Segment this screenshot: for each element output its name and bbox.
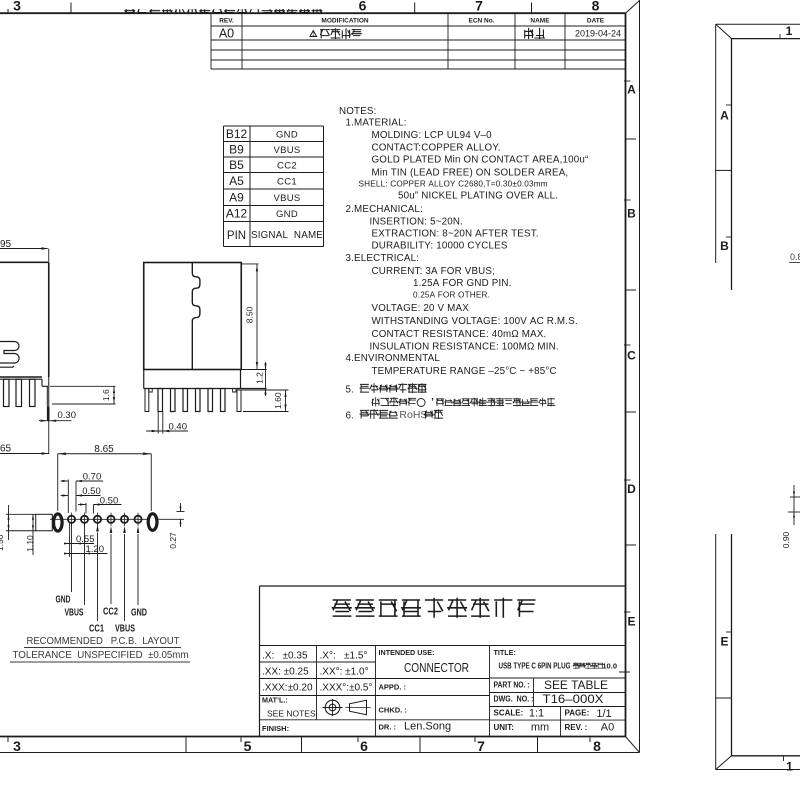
svg-text:mm: mm — [531, 722, 549, 734]
svg-text:A: A — [720, 109, 729, 123]
svg-text:1.2: 1.2 — [255, 372, 265, 384]
svg-text:A12: A12 — [226, 207, 248, 221]
svg-text:GND: GND — [276, 129, 298, 140]
svg-text:’: ’ — [431, 397, 434, 408]
svg-text:VBUS: VBUS — [273, 145, 300, 156]
svg-text:UNIT:: UNIT: — [494, 723, 514, 732]
svg-text:1: 1 — [786, 24, 793, 38]
svg-text:SEE TABLE: SEE TABLE — [544, 678, 608, 692]
svg-text:DWG. NO. :: DWG. NO. : — [494, 695, 534, 704]
svg-text:1.MATERIAL:: 1.MATERIAL: — [346, 118, 407, 129]
svg-text:SIGNAL NAME: SIGNAL NAME — [251, 230, 323, 241]
svg-text:.X: ±0.35: .X: ±0.35 — [262, 651, 308, 662]
svg-text:1: 1 — [312, 32, 315, 38]
svg-text:1: 1 — [786, 760, 793, 774]
svg-text:A0: A0 — [219, 27, 234, 41]
svg-text:VOLTAGE: 20 V MAX: VOLTAGE: 20 V MAX — [372, 303, 470, 314]
svg-text:3: 3 — [13, 738, 21, 754]
svg-text:1.20: 1.20 — [86, 544, 105, 555]
svg-text:.XX: ±0.25: .XX: ±0.25 — [262, 667, 309, 678]
svg-text:EXTRACTION: 8~20N AFTER TEST.: EXTRACTION: 8~20N AFTER TEST. — [372, 229, 539, 240]
svg-text:3: 3 — [13, 0, 21, 14]
svg-text:A: A — [627, 83, 636, 97]
svg-text:VBUS: VBUS — [273, 193, 300, 204]
svg-text:0.90: 0.90 — [781, 531, 791, 548]
svg-text:8: 8 — [592, 0, 600, 14]
svg-text:MAT’L.:: MAT’L.: — [262, 696, 288, 705]
svg-text:7: 7 — [477, 738, 485, 754]
svg-text:65: 65 — [0, 444, 12, 455]
svg-text:B: B — [720, 239, 729, 253]
svg-text:T16–000X: T16–000X — [543, 692, 604, 706]
svg-text:MOLDING: LCP UL94 V–0: MOLDING: LCP UL94 V–0 — [372, 130, 493, 141]
svg-text:REV. :: REV. : — [565, 723, 588, 732]
svg-text:50u” NICKEL PLATING OVER ALL.: 50u” NICKEL PLATING OVER ALL. — [398, 191, 558, 202]
svg-text:B12: B12 — [226, 127, 248, 141]
svg-text:0.25A FOR OTHER.: 0.25A FOR OTHER. — [413, 291, 490, 300]
svg-text:NOTES:: NOTES: — [339, 106, 377, 117]
svg-text:E: E — [627, 615, 635, 629]
svg-text:CC2: CC2 — [103, 607, 118, 618]
svg-text:WITHSTANDING VOLTAGE: 100V AC: WITHSTANDING VOLTAGE: 100V AC R.M.S. — [372, 316, 578, 327]
svg-text:4.ENVIRONMENTAL: 4.ENVIRONMENTAL — [346, 353, 441, 364]
svg-text:0.8: 0.8 — [790, 252, 800, 262]
svg-text:REV.: REV. — [219, 18, 234, 25]
svg-text:10.0: 10.0 — [602, 662, 617, 671]
svg-text:INTENDED USE:: INTENDED USE: — [379, 648, 435, 657]
svg-text:TITLE:: TITLE: — [494, 648, 516, 657]
svg-text:0.30: 0.30 — [58, 410, 77, 421]
svg-text:8.50: 8.50 — [245, 306, 255, 323]
svg-text:RECOMMENDED P.C.B. LAYOUT: RECOMMENDED P.C.B. LAYOUT — [27, 636, 180, 647]
svg-text:TOLERANCE UNSPECIFIED ±0.05m: TOLERANCE UNSPECIFIED ±0.05mm — [13, 650, 189, 661]
svg-text:DR. :: DR. : — [379, 723, 397, 732]
svg-text:MODIFICATION: MODIFICATION — [321, 18, 368, 25]
svg-text:1.25A FOR GND PIN.: 1.25A FOR GND PIN. — [413, 278, 512, 289]
svg-text:PAGE:: PAGE: — [565, 709, 590, 718]
svg-text:6: 6 — [359, 0, 367, 14]
svg-text:.XXX:±0.20: .XXX:±0.20 — [262, 683, 313, 694]
svg-text:1.6: 1.6 — [101, 389, 111, 401]
svg-text:Len.Song: Len.Song — [404, 721, 451, 733]
svg-text:SEE NOTES: SEE NOTES — [267, 709, 316, 719]
svg-text:A9: A9 — [229, 190, 244, 204]
svg-text:2.MECHANICAL:: 2.MECHANICAL: — [346, 204, 423, 215]
svg-text:0.27: 0.27 — [168, 532, 178, 549]
svg-text:E: E — [720, 635, 728, 649]
svg-text:DURABILITY: 10000 CYCLES: DURABILITY: 10000 CYCLES — [372, 241, 508, 252]
svg-text:CURRENT: 3A FOR VBUS;: CURRENT: 3A FOR VBUS; — [372, 266, 496, 277]
svg-text:INSULATION RESISTANCE: 100MΩ M: INSULATION RESISTANCE: 100MΩ MIN. — [370, 342, 559, 353]
svg-text:B: B — [627, 207, 636, 221]
svg-text:CONTACT RESISTANCE: 40mΩ MAX.: CONTACT RESISTANCE: 40mΩ MAX. — [372, 329, 547, 340]
svg-text:1/1: 1/1 — [596, 708, 611, 720]
svg-text:INSERTION: 5~20N.: INSERTION: 5~20N. — [370, 217, 464, 228]
svg-text:Min TIN (LEAD FREE) ON SOLDER: Min TIN (LEAD FREE) ON SOLDER AREA, — [372, 168, 569, 179]
svg-text:7: 7 — [475, 0, 483, 14]
svg-text:0.40: 0.40 — [169, 422, 188, 433]
svg-text:GND: GND — [276, 209, 298, 220]
svg-text:5: 5 — [244, 738, 252, 754]
svg-text:APPD. :: APPD. : — [379, 683, 407, 692]
svg-text:GND: GND — [131, 608, 147, 619]
svg-text:PIN: PIN — [227, 230, 246, 242]
svg-text:6.: 6. — [346, 411, 354, 422]
svg-text:CONNECTOR: CONNECTOR — [404, 661, 469, 675]
svg-text:1.50: 1.50 — [0, 534, 5, 551]
svg-text:.X°: ±1.5°: .X°: ±1.5° — [320, 651, 368, 662]
svg-text:GOLD PLATED Min ON CONTACT ARE: GOLD PLATED Min ON CONTACT AREA,100u“ — [372, 155, 589, 166]
svg-text:1.60: 1.60 — [273, 392, 283, 409]
svg-text:3.ELECTRICAL:: 3.ELECTRICAL: — [346, 253, 420, 264]
svg-text:VBUS: VBUS — [115, 624, 135, 635]
svg-text:SHELL: COPPER ALLOY C2680,T=0.: SHELL: COPPER ALLOY C2680,T=0.30±0.03mm — [359, 180, 548, 189]
svg-text:ECN No.: ECN No. — [469, 18, 495, 25]
svg-text:RoHS: RoHS — [399, 409, 427, 421]
svg-text:A0: A0 — [601, 722, 614, 734]
svg-text:A5: A5 — [229, 174, 244, 188]
svg-text:CC1: CC1 — [89, 624, 104, 635]
svg-text:5.: 5. — [346, 385, 354, 396]
svg-text:D: D — [627, 482, 636, 496]
svg-text:CONTACT:COPPER ALLOY.: CONTACT:COPPER ALLOY. — [372, 143, 501, 154]
svg-text:GND: GND — [56, 595, 71, 606]
svg-text:PART NO. :: PART NO. : — [494, 681, 530, 690]
svg-text:B5: B5 — [229, 158, 244, 172]
svg-text:.XXX°:±0.5°: .XXX°:±0.5° — [320, 683, 373, 694]
svg-text:CC2: CC2 — [277, 160, 297, 171]
svg-text:TEMPERATURE RANGE –25°C ~ +85°: TEMPERATURE RANGE –25°C ~ +85°C — [372, 366, 557, 377]
svg-text:1.10: 1.10 — [25, 535, 35, 552]
svg-text:B9: B9 — [229, 142, 244, 156]
svg-text:6: 6 — [360, 738, 368, 754]
svg-text:1:1: 1:1 — [529, 708, 544, 720]
svg-text:NAME: NAME — [530, 18, 550, 25]
svg-text:2019-04-24: 2019-04-24 — [575, 29, 621, 39]
svg-text:USB TYPE C 6PIN PLUG: USB TYPE C 6PIN PLUG — [499, 662, 571, 671]
svg-text:VBUS: VBUS — [65, 608, 84, 619]
svg-text:CHKD. :: CHKD. : — [379, 706, 407, 715]
svg-text:.XX°: ±1.0°: .XX°: ±1.0° — [320, 667, 369, 678]
svg-text:SCALE:: SCALE: — [494, 709, 524, 718]
svg-text:CC1: CC1 — [277, 176, 297, 187]
svg-text:DATE: DATE — [587, 18, 605, 25]
svg-text:8: 8 — [593, 738, 601, 754]
svg-text:C: C — [627, 349, 636, 363]
svg-text:FINISH:: FINISH: — [262, 724, 289, 733]
